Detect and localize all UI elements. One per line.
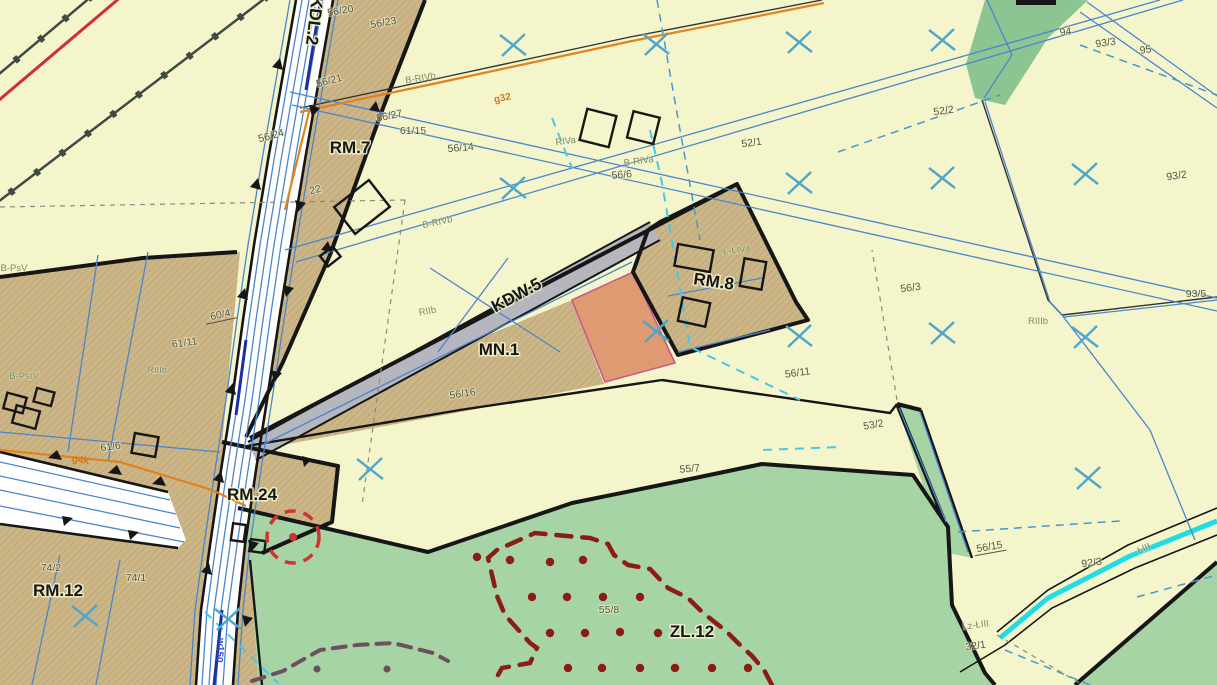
forest-dot-icon <box>473 553 481 561</box>
forest-dot-icon <box>599 593 607 601</box>
forest-dot-icon <box>528 593 536 601</box>
forest-dot-icon <box>564 664 572 672</box>
map-label-zl-12: ZL.12 <box>670 622 714 641</box>
map-label-56-14: 56/14 <box>447 141 474 155</box>
forest-dot-icon <box>546 629 554 637</box>
forest-dot-icon <box>616 628 624 636</box>
forest-dot-icon <box>671 664 679 672</box>
map-label-rm-12: RM.12 <box>33 581 83 600</box>
zoning-map-viewport[interactable]: 56/2056/2356/2156/2761/1556/2456/142256/… <box>0 0 1217 685</box>
map-label-61-15: 61/15 <box>400 125 426 137</box>
monument-site-dot-icon <box>289 533 297 541</box>
forest-dot-icon <box>546 558 554 566</box>
map-label-94: 94 <box>1059 25 1072 39</box>
map-label-55-7: 55/7 <box>679 462 701 476</box>
map-label-74-1: 74/1 <box>126 572 147 584</box>
forest-dot-icon <box>636 664 644 672</box>
cadastral-zoning-map: 56/2056/2356/2156/2761/1556/2456/142256/… <box>0 0 1217 685</box>
map-label-w150: w150 <box>213 637 226 664</box>
boundary-dot-icon <box>314 666 321 673</box>
cutoff-label-fragment <box>1016 0 1056 5</box>
forest-dot-icon <box>744 664 752 672</box>
map-label-b-psv: B-PsV <box>1 263 29 274</box>
forest-dot-icon <box>636 593 644 601</box>
forest-dot-icon <box>563 593 571 601</box>
map-label-b-psiv: B-PsIV <box>9 371 39 382</box>
forest-dot-icon <box>654 629 662 637</box>
map-label-55-8: 55/8 <box>599 604 620 616</box>
map-label-56-6: 56/6 <box>611 168 633 182</box>
forest-dot-icon <box>708 664 716 672</box>
map-label-74-2: 74/2 <box>41 562 62 574</box>
map-label-93-5: 93/5 <box>1186 288 1207 300</box>
forest-dot-icon <box>598 664 606 672</box>
map-label-95: 95 <box>1139 43 1152 57</box>
boundary-dot-icon <box>384 666 391 673</box>
map-label-riiib: RIIIb <box>1028 316 1048 327</box>
map-label-rm-24: RM.24 <box>227 485 278 504</box>
map-label-mn-1: MN.1 <box>479 340 520 359</box>
forest-dot-icon <box>506 556 514 564</box>
forest-dot-icon <box>581 629 589 637</box>
map-label-riiib: RIIIb <box>147 365 167 376</box>
map-label-rm-7: RM.7 <box>330 138 371 157</box>
forest-dot-icon <box>579 556 587 564</box>
